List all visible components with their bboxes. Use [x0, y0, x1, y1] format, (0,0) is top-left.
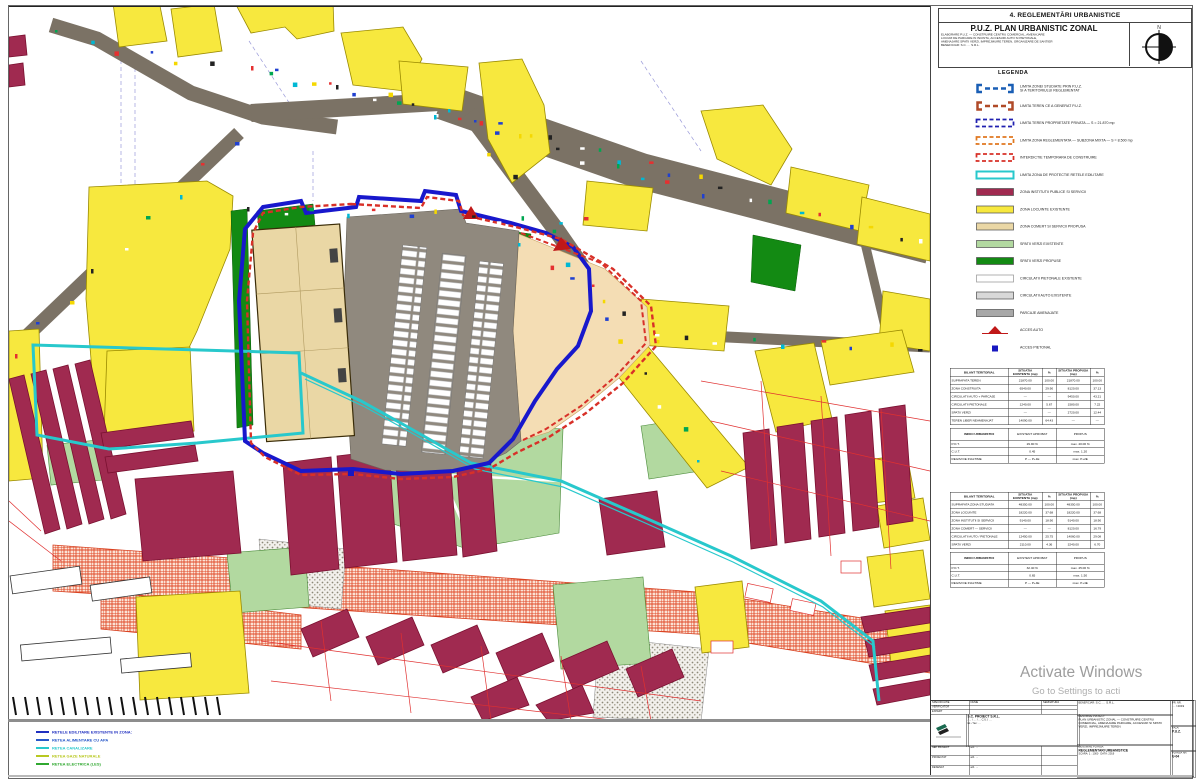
- legend-item-label: SPATII VERZI PROPUSE: [1020, 259, 1061, 263]
- plan-title: P.U.Z. PLAN URBANISTIC ZONAL: [939, 24, 1129, 33]
- company-logo-icon: [932, 715, 965, 744]
- utility-note-line: RETEA GAZE NATURALE: [36, 752, 236, 760]
- firm-contact: tel. / fax: …: [968, 722, 1079, 726]
- date-label: DATA:: [1100, 753, 1107, 756]
- cartouche-project-cell: DENUMIRE PROIECT: PLAN URBANISTIC ZONAL …: [1077, 714, 1173, 746]
- legend-item: ZONA INSTITUTII PUBLICE SI SERVICII: [975, 184, 1195, 201]
- legend-item: LIMITA TEREN PROPRIETATE PRIVATA — S = 2…: [975, 115, 1195, 132]
- project-no-value: … / 2019: [1172, 705, 1195, 709]
- legend-item: ZONA COMERT SI SERVICII PROPUSA: [975, 218, 1195, 235]
- territorial-balance-table-2: BILANT TERITORIALSITUATIA EXISTENTA (mp)…: [950, 492, 1110, 588]
- utility-note-line: RETEA ELECTRICA (LES): [36, 760, 236, 768]
- cartouche-projectno-cell: PR. NR. … / 2019: [1171, 701, 1197, 728]
- legend-item-label: ZONA COMERT SI SERVICII PROPUSA: [1020, 225, 1086, 229]
- legend-item: SPATII VERZI EXISTENTE: [975, 235, 1195, 252]
- cartouche-phase-cell: FAZA: P.U.Z.: [1171, 726, 1197, 753]
- title-block: 4. REGLEMENTĂRI URBANISTICE P.U.Z. PLAN …: [938, 8, 1192, 68]
- cartouche-firm-cell: S.C. PROIECT S.R.L. J… / … / … C.U.I. … …: [966, 714, 1080, 747]
- scale-value: 1 : 1000: [1089, 753, 1098, 756]
- compass-cell: N: [1129, 22, 1190, 66]
- cartouche-spec-strip: SPECIFICATIENUMESEMNATURAVERIFICATOREXPE…: [931, 701, 1078, 715]
- plan-title-cell: P.U.Z. PLAN URBANISTIC ZONAL ELABORARE P…: [939, 22, 1130, 66]
- activate-windows-watermark-line2: Go to Settings to acti: [1032, 686, 1120, 697]
- legend-item-label: ZONA LOCUINTE EXISTENTE: [1020, 207, 1070, 211]
- legend-item: ZONA LOCUINTE EXISTENTE: [975, 201, 1195, 218]
- utility-note-text: RETEA GAZE NATURALE: [52, 754, 100, 759]
- legend-item-label: ACCES PIETONAL: [1020, 345, 1051, 349]
- utility-note-line: RETELE EDILITARE EXISTENTE IN ZONA:: [36, 728, 236, 736]
- plan-subtitle: ELABORARE P.U.Z. — CONSTRUIRE CENTRU COM…: [939, 33, 1133, 48]
- utility-line-swatch: [36, 739, 49, 741]
- legend-item-label: LIMITA TEREN CE A GENERAT P.U.Z.: [1020, 104, 1082, 108]
- legend-item-label: LIMITA ZONEI STUDIATE PRIN P.U.Z. SI A T…: [1020, 85, 1082, 93]
- utility-line-swatch: [36, 731, 49, 733]
- legend-item: LIMITA ZONEI STUDIATE PRIN P.U.Z. SI A T…: [975, 80, 1195, 97]
- legend-item: LIMITA ZONA REGLEMENTATA — SUBZONA MIXTA…: [975, 132, 1195, 149]
- legend-item: SPATII VERZI PROPUSE: [975, 253, 1195, 270]
- scale-label: SCARA:: [1079, 753, 1089, 756]
- territorial-balance-table-1: BILANT TERITORIALSITUATIA EXISTENTA (mp)…: [950, 368, 1110, 464]
- utility-line-swatch: [36, 755, 49, 757]
- legend-item-label: LIMITA ZONA REGLEMENTATA — SUBZONA MIXTA…: [1020, 138, 1133, 142]
- legend-item: CIRCULATII PIETONALE EXISTENTE: [975, 270, 1195, 287]
- legend-item: LIMITA TEREN CE A GENERAT P.U.Z.: [975, 97, 1195, 114]
- activate-windows-watermark: Activate Windows: [1020, 664, 1142, 682]
- utility-note-text: RETEA CANALIZARE: [52, 746, 93, 751]
- legend-item: INTERDICTIE TEMPORARA DE CONSTRUIRE: [975, 149, 1195, 166]
- cartouche-logo-cell: [931, 714, 969, 747]
- utility-note-text: RETELE EDILITARE EXISTENTE IN ZONA:: [52, 730, 132, 735]
- legend-item-label: ACCES AUTO: [1020, 328, 1043, 332]
- utility-line-swatch: [36, 747, 49, 749]
- beneficiary-label: BENEFICIAR:: [1079, 702, 1095, 705]
- phase-value: P.U.Z.: [1172, 730, 1195, 734]
- utility-note-line: RETEA ALIMENTARE CU APA: [36, 736, 236, 744]
- map-bottom-border: [8, 719, 930, 722]
- utility-notes: RETELE EDILITARE EXISTENTE IN ZONA:RETEA…: [36, 728, 236, 768]
- legend-item: ACCES PIETONAL: [975, 339, 1195, 356]
- puz-drawing-sheet: 4. REGLEMENTĂRI URBANISTICE P.U.Z. PLAN …: [0, 0, 1200, 782]
- north-arrow-icon: N: [1129, 22, 1190, 66]
- cartouche: SPECIFICATIENUMESEMNATURAVERIFICATOREXPE…: [930, 700, 1193, 777]
- utility-note-text: RETEA ELECTRICA (LES): [52, 762, 101, 767]
- cartouche-sheetno-cell: PLANSA NR. U-04: [1171, 751, 1197, 778]
- legend-item-label: CIRCULATII AUTO EXISTENTE: [1020, 294, 1071, 298]
- legend-item-label: CIRCULATII PIETONALE EXISTENTE: [1020, 276, 1082, 280]
- date-value: 2019: [1108, 753, 1114, 756]
- legend-item: CIRCULATII AUTO EXISTENTE: [975, 287, 1195, 304]
- cartouche-sheet-cell: DENUMIRE PLANSA: REGLEMENTARI URBANISTIC…: [1077, 745, 1173, 778]
- legend-item-label: PARCAJE AMENAJATE: [1020, 311, 1058, 315]
- legend-item-label: SPATII VERZI EXISTENTE: [1020, 242, 1063, 246]
- legend: LIMITA ZONEI STUDIATE PRIN P.U.Z. SI A T…: [975, 80, 1195, 356]
- legend-item: PARCAJE AMENAJATE: [975, 304, 1195, 321]
- cartouche-authors-strip: SEF PROIECTarh. …PROIECTATarh. …DESENATa…: [931, 746, 1078, 777]
- legend-item-label: LIMITA TEREN PROPRIETATE PRIVATA — S = 2…: [1020, 121, 1115, 125]
- beneficiary-value: S.C. … S.R.L.: [1096, 702, 1115, 705]
- utility-note-text: RETEA ALIMENTARE CU APA: [52, 738, 108, 743]
- legend-item: ACCES AUTO: [975, 322, 1195, 339]
- sheet-no-value: U-04: [1172, 755, 1195, 759]
- legend-item: LIMITA ZONA DE PROTECTIE RETELE EDILITAR…: [975, 166, 1195, 183]
- utility-line-swatch: [36, 763, 49, 765]
- utility-note-line: RETEA CANALIZARE: [36, 744, 236, 752]
- project-name: PLAN URBANISTIC ZONAL — CONSTRUIRE CENTR…: [1079, 719, 1172, 730]
- legend-item-label: LIMITA ZONA DE PROTECTIE RETELE EDILITAR…: [1020, 173, 1104, 177]
- legend-item-label: INTERDICTIE TEMPORARA DE CONSTRUIRE: [1020, 156, 1097, 160]
- legend-title: LEGENDA: [998, 70, 1068, 76]
- chapter-title: 4. REGLEMENTĂRI URBANISTICE: [939, 9, 1191, 23]
- legend-item-label: ZONA INSTITUTII PUBLICE SI SERVICII: [1020, 190, 1086, 194]
- page-bottom-border: [8, 775, 1192, 777]
